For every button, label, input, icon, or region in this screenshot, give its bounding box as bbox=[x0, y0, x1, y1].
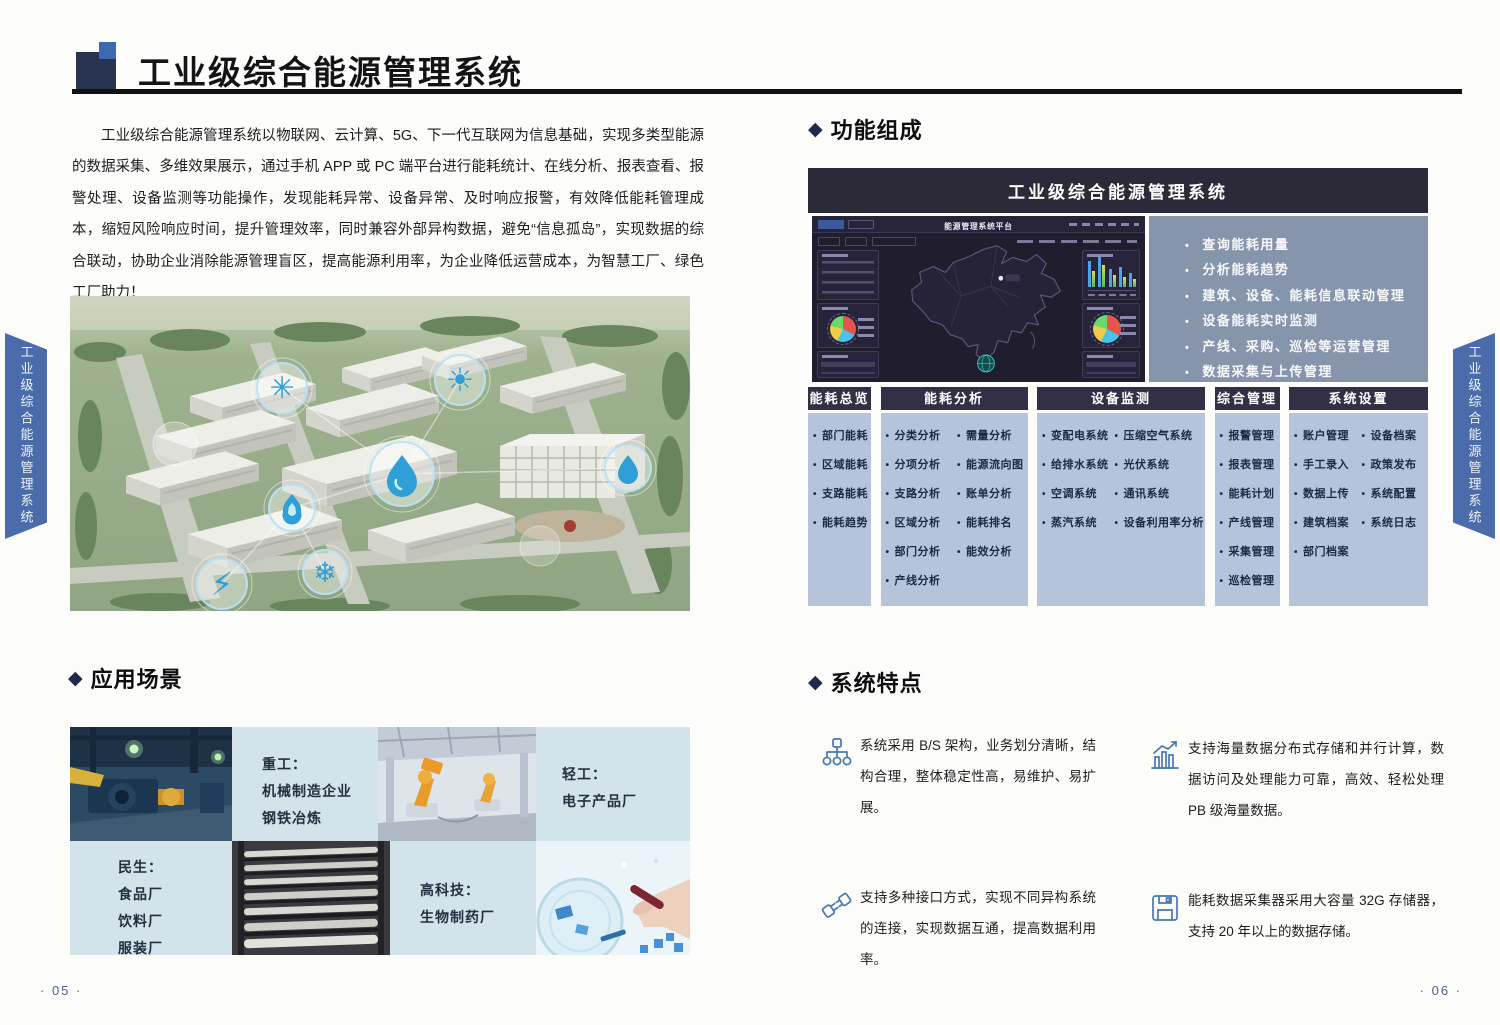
page-number-left: · 05 · bbox=[40, 983, 82, 998]
function-item: 部门分析 bbox=[886, 538, 956, 567]
function-highlight-item: 产线、采购、巡检等运营管理 bbox=[1185, 335, 1428, 360]
scenario-line: 机械制造企业 bbox=[262, 778, 378, 805]
scenario-hightech: 高科技： 生物制药厂 bbox=[390, 841, 536, 955]
function-column: 设备监测变配电系统给排水系统空调系统蒸汽系统压缩空气系统光伏系统通讯系统设备利用… bbox=[1037, 387, 1205, 606]
snowflake-icon: ❄ bbox=[298, 545, 352, 599]
function-item: 部门能耗 bbox=[813, 422, 870, 451]
function-composition-box: 工业级综合能源管理系统 能源管理系统平台 bbox=[808, 168, 1428, 606]
scenario-heavy-industry: 重工： 机械制造企业 钢铁冶炼 bbox=[232, 727, 378, 841]
function-item: 蒸汽系统 bbox=[1042, 509, 1112, 538]
function-item: 建筑档案 bbox=[1294, 509, 1360, 538]
feature-text: 系统采用 B/S 架构，业务划分清晰，结构合理，整体稳定性高，易维护、易扩展。 bbox=[860, 730, 1096, 823]
function-item: 需量分析 bbox=[957, 422, 1027, 451]
function-item: 分项分析 bbox=[886, 451, 956, 480]
svg-text:☀: ☀ bbox=[446, 362, 475, 398]
function-item: 能耗计划 bbox=[1220, 480, 1279, 509]
sun-icon: ☀ bbox=[430, 350, 490, 410]
function-item: 支路分析 bbox=[886, 480, 956, 509]
function-item: 压缩空气系统 bbox=[1114, 422, 1204, 451]
dashboard-tab-chip bbox=[818, 220, 844, 229]
scenario-line: 生物制药厂 bbox=[420, 904, 536, 931]
function-item: 光伏系统 bbox=[1114, 451, 1204, 480]
dashboard-stats-panel bbox=[817, 250, 879, 300]
feature-text: 能耗数据采集器采用大容量 32G 存储器，支持 20 年以上的数据存储。 bbox=[1188, 885, 1444, 947]
section-title: 应用场景 bbox=[91, 662, 183, 694]
scenario-line: 食品厂 bbox=[118, 881, 232, 908]
title-underline bbox=[72, 89, 1462, 94]
dashboard-table-panel-right bbox=[1082, 351, 1140, 378]
function-item: 分类分析 bbox=[886, 422, 956, 451]
logo-blue-square bbox=[99, 42, 116, 59]
function-item: 能耗趋势 bbox=[813, 509, 870, 538]
flame-icon bbox=[264, 480, 320, 536]
diamond-icon: ◆ bbox=[808, 673, 824, 692]
function-item: 数据上传 bbox=[1294, 480, 1360, 509]
function-table: 能耗总览部门能耗区域能耗支路能耗能耗趋势能耗分析分类分析分项分析支路分析区域分析… bbox=[808, 387, 1428, 606]
water-drop-small-icon bbox=[600, 440, 656, 496]
feature-architecture: 系统采用 B/S 架构，业务划分清晰，结构合理，整体稳定性高，易维护、易扩展。 bbox=[820, 730, 1096, 823]
section-heading-application: ◆ 应用场景 bbox=[68, 662, 183, 694]
function-column-body: 报警管理报表管理能耗计划产线管理采集管理巡检管理 bbox=[1215, 413, 1280, 606]
page-title: 工业级综合能源管理系统 bbox=[138, 46, 523, 94]
function-column: 能耗总览部门能耗区域能耗支路能耗能耗趋势 bbox=[808, 387, 871, 606]
function-item: 报表管理 bbox=[1220, 451, 1279, 480]
function-item: 采集管理 bbox=[1220, 538, 1279, 567]
function-column-header: 综合管理 bbox=[1215, 387, 1280, 410]
function-item: 支路能耗 bbox=[813, 480, 870, 509]
function-column-body: 账户管理手工录入数据上传建筑档案部门档案设备档案政策发布系统配置系统日志 bbox=[1289, 413, 1428, 606]
svg-text:⚡: ⚡ bbox=[211, 566, 233, 602]
diamond-icon: ◆ bbox=[808, 120, 824, 139]
diamond-icon: ◆ bbox=[68, 669, 84, 688]
scenario-row: 重工： 机械制造企业 钢铁冶炼 bbox=[70, 727, 690, 841]
side-tab-right: 工业级综合能源管理系统 bbox=[1453, 333, 1495, 539]
side-tab-label: 工业级综合能源管理系统 bbox=[17, 345, 36, 527]
scenario-line: 电子产品厂 bbox=[562, 788, 690, 815]
industrial-park-illustration: ✳ ☀ ⚡ bbox=[70, 296, 690, 611]
function-column-header: 设备监测 bbox=[1037, 387, 1205, 410]
function-item: 变配电系统 bbox=[1042, 422, 1112, 451]
function-column-header: 能耗总览 bbox=[808, 387, 871, 410]
section-title: 功能组成 bbox=[831, 113, 923, 145]
scenario-line: 钢铁冶炼 bbox=[262, 805, 378, 832]
biotech-lab-photo bbox=[536, 841, 690, 955]
bar-chart-icon bbox=[1148, 739, 1182, 773]
function-item: 报警管理 bbox=[1220, 422, 1279, 451]
intro-paragraph: 工业级综合能源管理系统以物联网、云计算、5G、下一代互联网为信息基础，实现多类型… bbox=[72, 121, 704, 309]
industrial-park-render: ✳ ☀ ⚡ bbox=[70, 296, 690, 611]
scenario-label: 民生： bbox=[118, 854, 232, 881]
feature-storage: 能耗数据采集器采用大容量 32G 存储器，支持 20 年以上的数据存储。 bbox=[1148, 885, 1444, 947]
function-item-list: 报警管理报表管理能耗计划产线管理采集管理巡检管理 bbox=[1220, 422, 1279, 606]
dashboard-bar-chart-panel bbox=[1082, 250, 1140, 300]
function-highlight-item: 数据采集与上传管理 bbox=[1185, 360, 1428, 385]
function-item: 设备利用率分析 bbox=[1114, 509, 1204, 538]
food-racks-photo bbox=[232, 841, 390, 955]
function-item-list: 设备档案政策发布系统配置系统日志 bbox=[1362, 422, 1428, 606]
function-item: 产线管理 bbox=[1220, 509, 1279, 538]
function-item: 设备档案 bbox=[1362, 422, 1428, 451]
fan-icon: ✳ bbox=[252, 358, 312, 418]
function-column: 综合管理报警管理报表管理能耗计划产线管理采集管理巡检管理 bbox=[1215, 387, 1280, 606]
scenario-light-industry: 轻工： 电子产品厂 bbox=[536, 727, 690, 841]
scenario-line: 饮料厂 bbox=[118, 908, 232, 935]
scenario-livelihood: 民生： 食品厂 饮料厂 服装厂 bbox=[70, 841, 232, 955]
function-item-list: 账户管理手工录入数据上传建筑档案部门档案 bbox=[1294, 422, 1360, 606]
function-item-list: 部门能耗区域能耗支路能耗能耗趋势 bbox=[813, 422, 870, 606]
function-column: 能耗分析分类分析分项分析支路分析区域分析部门分析产线分析需量分析能源流向图账单分… bbox=[881, 387, 1028, 606]
function-column-body: 分类分析分项分析支路分析区域分析部门分析产线分析需量分析能源流向图账单分析能耗排… bbox=[881, 413, 1028, 606]
hierarchy-icon bbox=[820, 736, 854, 770]
dashboard-table-panel-left bbox=[817, 351, 879, 378]
dashboard-topbar: 能源管理系统平台 bbox=[812, 216, 1145, 233]
function-column: 系统设置账户管理手工录入数据上传建筑档案部门档案设备档案政策发布系统配置系统日志 bbox=[1289, 387, 1428, 606]
function-item: 巡检管理 bbox=[1220, 567, 1279, 596]
scenario-label: 高科技： bbox=[420, 877, 536, 904]
scenario-row: 民生： 食品厂 饮料厂 服装厂 bbox=[70, 841, 690, 955]
plug-icon bbox=[820, 888, 854, 922]
function-item-list: 需量分析能源流向图账单分析能耗排名能效分析 bbox=[957, 422, 1027, 606]
function-item: 能效分析 bbox=[957, 538, 1027, 567]
function-column-body: 部门能耗区域能耗支路能耗能耗趋势 bbox=[808, 413, 871, 606]
function-item: 系统配置 bbox=[1362, 480, 1428, 509]
dashboard-pie-panel-right bbox=[1082, 303, 1140, 348]
function-item: 部门档案 bbox=[1294, 538, 1360, 567]
function-highlight-item: 分析能耗趋势 bbox=[1185, 258, 1428, 283]
page-number-right: · 06 · bbox=[1420, 983, 1462, 998]
feature-text: 支持多种接口方式，实现不同异构系统的连接，实现数据互通，提高数据利用率。 bbox=[860, 882, 1096, 975]
dashboard-pie-panel-left bbox=[817, 303, 879, 348]
function-item-list: 分类分析分项分析支路分析区域分析部门分析产线分析 bbox=[886, 422, 956, 606]
function-highlight-item: 设备能耗实时监测 bbox=[1185, 309, 1428, 334]
function-main-row: 能源管理系统平台 bbox=[808, 216, 1428, 382]
svg-text:✳: ✳ bbox=[269, 372, 294, 405]
function-item: 空调系统 bbox=[1042, 480, 1112, 509]
svg-text:❄: ❄ bbox=[313, 557, 336, 588]
brochure-spread: 工业级综合能源管理系统 工业级综合能源管理系统以物联网、云计算、5G、下一代互联… bbox=[0, 0, 1500, 1025]
side-tab-label: 工业级综合能源管理系统 bbox=[1465, 345, 1484, 527]
function-item-list: 压缩空气系统光伏系统通讯系统设备利用率分析 bbox=[1114, 422, 1204, 606]
function-item: 通讯系统 bbox=[1114, 480, 1204, 509]
function-item: 账单分析 bbox=[957, 480, 1027, 509]
water-drop-icon bbox=[364, 436, 440, 512]
function-item: 产线分析 bbox=[886, 567, 956, 596]
function-item: 给排水系统 bbox=[1042, 451, 1112, 480]
function-column-header: 系统设置 bbox=[1289, 387, 1428, 410]
function-item: 能源流向图 bbox=[957, 451, 1027, 480]
function-item: 区域能耗 bbox=[813, 451, 870, 480]
feature-bigdata: 支持海量数据分布式存储和并行计算，数据访问及处理能力可靠，高效、轻松处理 PB … bbox=[1148, 733, 1444, 826]
function-item: 能耗排名 bbox=[957, 509, 1027, 538]
function-item-list: 变配电系统给排水系统空调系统蒸汽系统 bbox=[1042, 422, 1112, 606]
function-item: 区域分析 bbox=[886, 509, 956, 538]
section-heading-features: ◆ 系统特点 bbox=[808, 666, 923, 698]
application-scenarios-grid: 重工： 机械制造企业 钢铁冶炼 bbox=[70, 727, 690, 955]
feature-interfaces: 支持多种接口方式，实现不同异构系统的连接，实现数据互通，提高数据利用率。 bbox=[820, 882, 1096, 975]
function-highlight-item: 查询能耗用量 bbox=[1185, 233, 1428, 258]
section-heading-functions: ◆ 功能组成 bbox=[808, 113, 923, 145]
scenario-label: 轻工： bbox=[562, 761, 690, 788]
feature-text: 支持海量数据分布式存储和并行计算，数据访问及处理能力可靠，高效、轻松处理 PB … bbox=[1188, 733, 1444, 826]
robot-factory-photo bbox=[378, 727, 536, 841]
dashboard-screenshot: 能源管理系统平台 bbox=[812, 216, 1145, 382]
floppy-disk-icon bbox=[1148, 891, 1182, 925]
side-tab-left: 工业级综合能源管理系统 bbox=[5, 333, 47, 539]
section-title: 系统特点 bbox=[831, 666, 923, 698]
function-item: 政策发布 bbox=[1362, 451, 1428, 480]
function-column-body: 变配电系统给排水系统空调系统蒸汽系统压缩空气系统光伏系统通讯系统设备利用率分析 bbox=[1037, 413, 1205, 606]
dashboard-meta-text bbox=[1069, 223, 1139, 226]
function-highlight-item: 建筑、设备、能耗信息联动管理 bbox=[1185, 284, 1428, 309]
function-item: 账户管理 bbox=[1294, 422, 1360, 451]
china-map bbox=[882, 236, 1080, 378]
steel-mill-photo bbox=[70, 727, 232, 841]
function-banner: 工业级综合能源管理系统 bbox=[808, 168, 1428, 213]
function-item: 手工录入 bbox=[1294, 451, 1360, 480]
function-item: 系统日志 bbox=[1362, 509, 1428, 538]
scenario-line: 服装厂 bbox=[118, 935, 232, 955]
function-column-header: 能耗分析 bbox=[881, 387, 1028, 410]
scenario-label: 重工： bbox=[262, 751, 378, 778]
function-highlights-list: 查询能耗用量分析能耗趋势建筑、设备、能耗信息联动管理设备能耗实时监测产线、采购、… bbox=[1149, 216, 1428, 382]
